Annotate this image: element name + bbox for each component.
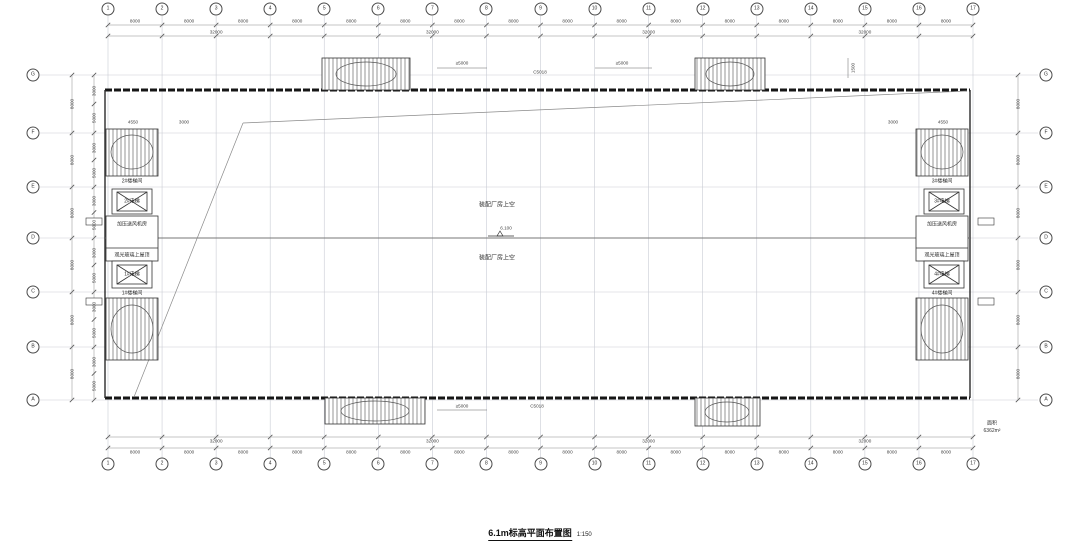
plan-linework bbox=[0, 0, 1080, 552]
building-outline bbox=[105, 90, 970, 398]
stair-bottom-left bbox=[106, 298, 158, 360]
elevation-marker bbox=[488, 231, 514, 236]
louver-left-2 bbox=[86, 298, 102, 305]
stair-bottom-right bbox=[916, 298, 968, 360]
edge-stairs-top bbox=[322, 58, 765, 90]
louver-right-2 bbox=[978, 298, 994, 305]
floor-plan-sheet: 2#楼梯间 2#电梯 加压送风机房 观光玻璃上屋顶 1#电梯 1#楼梯间 3#楼… bbox=[0, 0, 1080, 552]
diagonal-lines bbox=[134, 91, 967, 397]
annotation-leaders bbox=[437, 58, 848, 410]
right-core bbox=[916, 129, 994, 360]
louver-left-1 bbox=[86, 218, 102, 225]
fan-room-right bbox=[916, 216, 968, 261]
louver-right-1 bbox=[978, 218, 994, 225]
left-core bbox=[86, 129, 158, 360]
fan-room-left bbox=[106, 216, 158, 261]
edge-stairs-bottom bbox=[325, 398, 760, 426]
